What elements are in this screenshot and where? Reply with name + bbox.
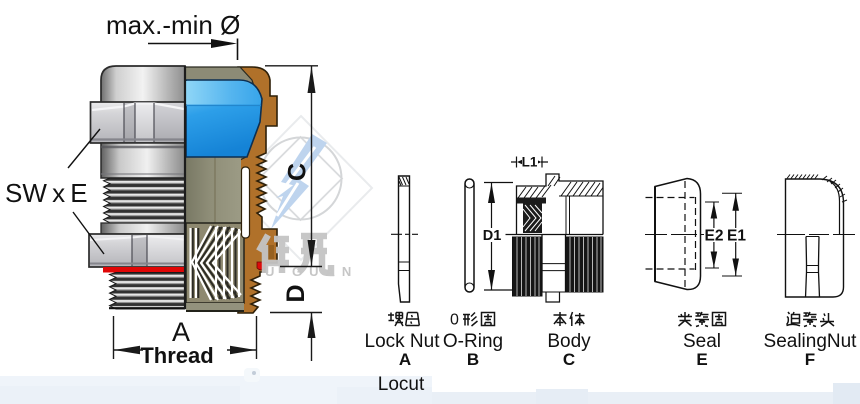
svg-text:Body: Body	[547, 331, 591, 352]
svg-text:Seal: Seal	[683, 331, 721, 352]
svg-text:F: F	[805, 350, 815, 369]
svg-text:E1: E1	[727, 228, 746, 245]
svg-text:B: B	[467, 350, 479, 369]
svg-text:Lock Nut: Lock Nut	[365, 331, 441, 352]
svg-text:SW x E: SW x E	[5, 178, 88, 208]
svg-text:C: C	[284, 163, 312, 181]
svg-text:D1: D1	[483, 228, 502, 244]
svg-text:SealingNut: SealingNut	[764, 331, 858, 352]
svg-text:C: C	[563, 350, 575, 369]
svg-text:0: 0	[450, 312, 459, 329]
svg-text:max.-min Ø: max.-min Ø	[106, 10, 240, 40]
svg-text:A: A	[399, 350, 411, 369]
svg-text:E2: E2	[705, 228, 724, 245]
svg-text:D: D	[282, 284, 310, 302]
svg-text:E: E	[696, 350, 707, 369]
svg-text:Thread: Thread	[140, 343, 213, 368]
svg-text:O-Ring: O-Ring	[443, 331, 503, 352]
svg-text:L1: L1	[522, 155, 538, 170]
svg-text:Locut: Locut	[378, 374, 425, 395]
